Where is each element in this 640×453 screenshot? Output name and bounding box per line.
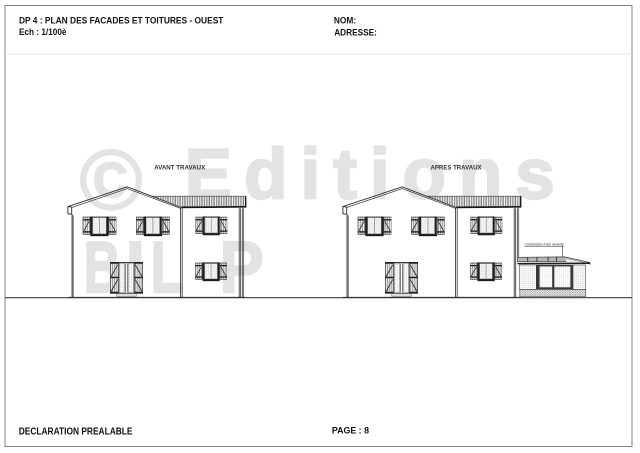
svg-text:Ech : 1/100è: Ech : 1/100è — [19, 27, 67, 37]
svg-text:APRES TRAVAUX: APRES TRAVAUX — [431, 165, 482, 172]
svg-text:Construction d'une veranda: Construction d'une veranda — [525, 242, 564, 246]
svg-text:NOM:: NOM: — [334, 15, 356, 25]
svg-text:AVANT TRAVAUX: AVANT TRAVAUX — [154, 165, 205, 172]
svg-text:L: L — [151, 228, 184, 308]
svg-text:DP 4 : PLAN DES FACADES ET TOI: DP 4 : PLAN DES FACADES ET TOITURES - OU… — [19, 15, 224, 25]
svg-text:DECLARATION PREALABLE: DECLARATION PREALABLE — [19, 426, 133, 437]
svg-text:PAGE : 8: PAGE : 8 — [332, 425, 369, 435]
svg-text:ADRESSE:: ADRESSE: — [334, 27, 377, 37]
svg-text:©: © — [80, 133, 143, 229]
